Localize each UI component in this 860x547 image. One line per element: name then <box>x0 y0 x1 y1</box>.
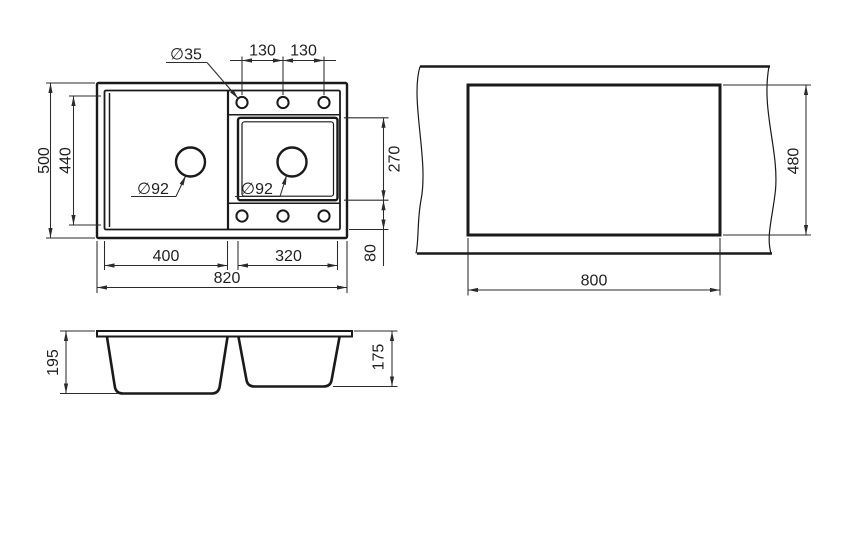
break-line-right <box>767 67 776 254</box>
right-bowl-depth-label: 270 <box>387 146 404 173</box>
dim-right-bowl-length: 320 <box>238 241 338 270</box>
section-left-bowl <box>107 337 228 394</box>
section-view: 195 175 <box>45 331 398 394</box>
rear-offset-label: 80 <box>363 244 380 262</box>
section-right-bowl <box>239 337 340 387</box>
cutout-view: 480 800 <box>416 67 811 296</box>
left-bowl-length-label: 400 <box>153 248 180 265</box>
right-bowl-length-label: 320 <box>275 248 302 265</box>
tap-hole-2 <box>277 97 288 108</box>
tap-hole-diameter-label: ∅35 <box>170 47 202 64</box>
drawing-canvas: 500 440 ∅35 130 130 ∅92 <box>0 0 860 547</box>
inner-depth-label: 440 <box>58 147 75 174</box>
dim-right-bowl-depth: 270 <box>344 118 404 200</box>
dim-drain-left: ∅92 <box>131 176 186 198</box>
drain-hole-left <box>176 148 205 177</box>
section-rim <box>97 331 352 337</box>
tap-hole-5 <box>277 210 288 221</box>
cutout-rect <box>468 85 720 235</box>
dim-cutout-depth: 480 <box>723 85 811 235</box>
left-bowl-depth-label: 195 <box>45 349 62 376</box>
drain-hole-right <box>278 148 307 177</box>
tap-hole-6 <box>318 210 329 221</box>
dim-right-bowl-depth-section: 175 <box>333 331 398 387</box>
tap-spacing-b-label: 130 <box>290 43 317 60</box>
dim-overall-length: 820 <box>97 241 347 293</box>
cutout-length-label: 800 <box>581 273 608 290</box>
plan-view: 500 440 ∅35 130 130 ∅92 <box>36 43 404 294</box>
drain-left-label: ∅92 <box>137 181 169 198</box>
tap-spacing-a-label: 130 <box>249 43 276 60</box>
overall-length-label: 820 <box>214 270 241 287</box>
tap-hole-3 <box>318 97 329 108</box>
dim-drain-right: ∅92 <box>235 175 287 198</box>
dim-inner-depth: 440 <box>58 96 102 225</box>
right-bowl-depth-section-label: 175 <box>371 344 388 371</box>
dim-cutout-length: 800 <box>468 238 720 296</box>
sink-outline <box>97 83 347 238</box>
overall-depth-label: 500 <box>36 147 53 174</box>
cutout-depth-label: 480 <box>786 148 803 175</box>
sink-rim-inner-edge <box>105 91 341 230</box>
dim-rear-offset: 80 <box>349 200 389 266</box>
break-line-left <box>416 67 423 254</box>
sink-drawing-svg: 500 440 ∅35 130 130 ∅92 <box>0 0 860 547</box>
dim-tap-spacing: 130 130 <box>230 43 336 96</box>
tap-hole-4 <box>236 210 247 221</box>
dim-left-bowl-length: 400 <box>105 241 228 270</box>
drain-right-label: ∅92 <box>241 181 273 198</box>
